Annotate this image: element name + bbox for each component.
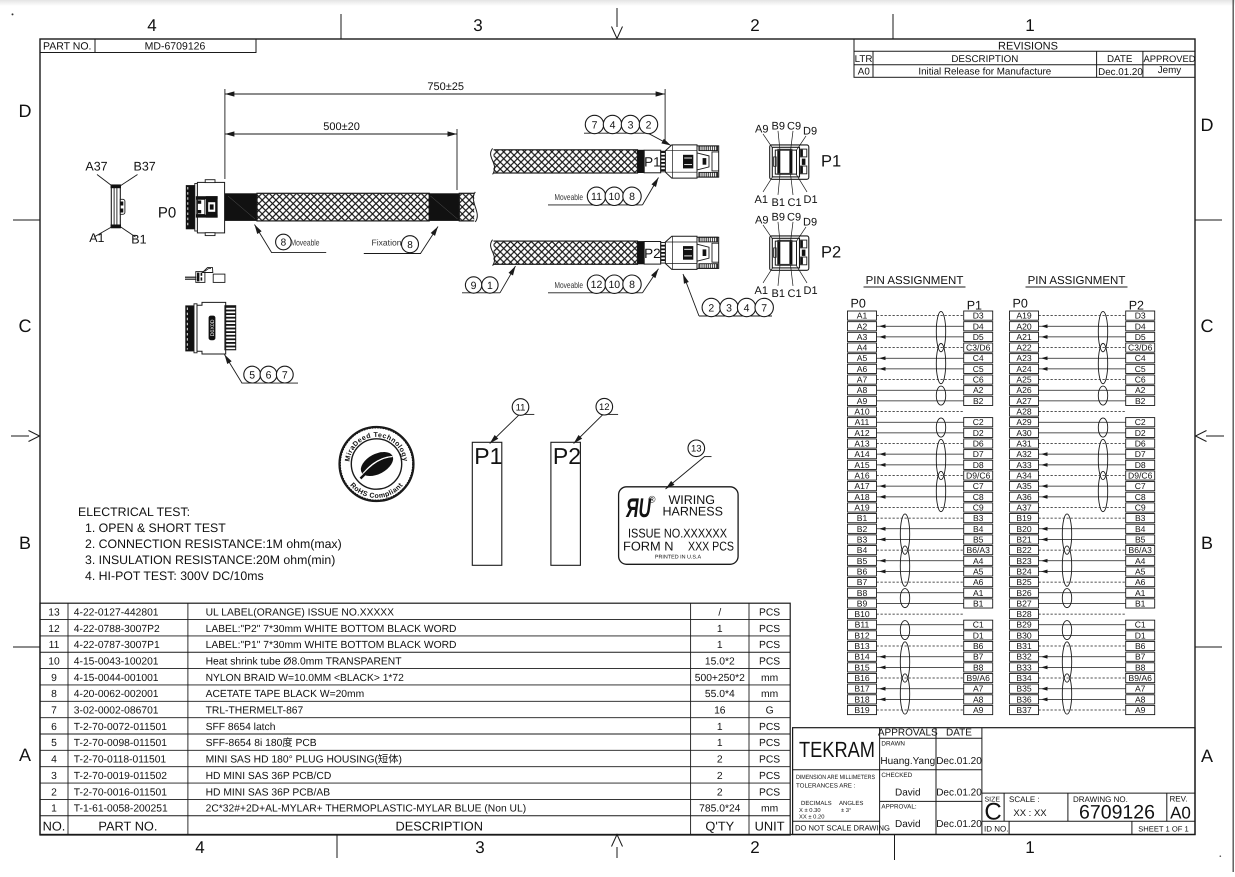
svg-text:C3/D6: C3/D6: [966, 343, 991, 353]
svg-text:2: 2: [750, 838, 759, 857]
svg-text:D2: D2: [1135, 428, 1146, 438]
svg-text:LABEL:"P1" 7*30mm WHITE BOTTOM: LABEL:"P1" 7*30mm WHITE BOTTOM BLACK WOR…: [206, 640, 457, 651]
svg-text:6: 6: [51, 722, 57, 733]
svg-text:D3: D3: [1135, 311, 1146, 321]
svg-text:D5: D5: [1135, 332, 1146, 342]
svg-text:C5: C5: [1135, 364, 1146, 374]
svg-text:2: 2: [51, 787, 57, 798]
svg-text:B13: B13: [854, 641, 870, 651]
svg-text:2: 2: [750, 16, 759, 35]
svg-text:Moveable: Moveable: [555, 280, 584, 290]
svg-text:P0: P0: [851, 297, 866, 311]
svg-text:B6: B6: [857, 566, 868, 576]
svg-text:DESCRIPTION: DESCRIPTION: [396, 818, 483, 833]
svg-text:SFF-8654 8i 180度 PCB: SFF-8654 8i 180度 PCB: [206, 737, 317, 749]
svg-text:A2: A2: [857, 321, 868, 331]
svg-text:MD-6709126: MD-6709126: [145, 41, 206, 53]
svg-text:11: 11: [591, 191, 602, 203]
svg-text:A24: A24: [1016, 364, 1032, 374]
svg-text:C2: C2: [973, 417, 984, 427]
svg-text:T-2-70-0016-011501: T-2-70-0016-011501: [74, 787, 167, 798]
svg-text:B5: B5: [973, 534, 984, 544]
svg-text:7: 7: [282, 369, 288, 381]
svg-text:B9: B9: [772, 120, 785, 132]
svg-text:3-02-0002-086701: 3-02-0002-086701: [74, 706, 159, 717]
svg-text:9: 9: [51, 673, 57, 684]
svg-text:DRAWN: DRAWN: [881, 741, 905, 748]
svg-text:55.0*4: 55.0*4: [705, 689, 735, 700]
svg-text:D9: D9: [803, 216, 817, 228]
svg-text:A25: A25: [1016, 375, 1032, 385]
svg-text:4. HI-POT TEST: 300V DC/10ms: 4. HI-POT TEST: 300V DC/10ms: [85, 569, 264, 583]
svg-text:Moveable: Moveable: [291, 238, 320, 248]
svg-text:A1: A1: [973, 588, 984, 598]
svg-text:7: 7: [761, 302, 767, 314]
svg-text:Fixation: Fixation: [372, 238, 402, 248]
svg-text:15.0*2: 15.0*2: [705, 656, 735, 667]
svg-text:C1: C1: [1135, 620, 1146, 630]
svg-text:B21: B21: [1016, 534, 1032, 544]
svg-text:B19: B19: [1016, 513, 1032, 523]
svg-text:16: 16: [714, 706, 726, 717]
svg-text:T-2-70-0019-011502: T-2-70-0019-011502: [74, 771, 167, 782]
svg-text:B31: B31: [1016, 641, 1032, 651]
svg-text:B9: B9: [772, 211, 785, 223]
svg-text:C5: C5: [973, 364, 984, 374]
svg-text:B12: B12: [854, 630, 870, 640]
svg-text:TRL-THERMELT-867: TRL-THERMELT-867: [206, 706, 304, 717]
svg-text:8: 8: [629, 279, 635, 291]
svg-text:A19: A19: [1016, 311, 1032, 321]
svg-text:B26: B26: [1016, 588, 1032, 598]
svg-text:REVISIONS: REVISIONS: [998, 41, 1058, 53]
svg-text:12: 12: [48, 624, 60, 635]
svg-text:APPROVALS: APPROVALS: [878, 728, 938, 739]
svg-text:A9: A9: [857, 396, 868, 406]
svg-text:C9: C9: [1135, 502, 1146, 512]
svg-text:B3: B3: [1135, 513, 1146, 523]
svg-text:D8: D8: [1135, 460, 1146, 470]
svg-text:mm: mm: [761, 804, 778, 815]
svg-text:A9: A9: [973, 705, 984, 715]
svg-text:B32: B32: [1016, 652, 1032, 662]
svg-text:D8: D8: [973, 460, 984, 470]
svg-text:C4: C4: [1135, 353, 1146, 363]
svg-text:PART NO.: PART NO.: [43, 41, 91, 53]
svg-text:1: 1: [717, 722, 723, 733]
svg-text:Dec.01.20: Dec.01.20: [936, 756, 982, 767]
svg-text:C6: C6: [973, 375, 984, 385]
svg-text:UNIT: UNIT: [755, 818, 785, 833]
svg-text:A32: A32: [1016, 449, 1032, 459]
svg-text:/: /: [718, 607, 721, 618]
svg-text:C8: C8: [973, 492, 984, 502]
svg-text:A22: A22: [1016, 343, 1032, 353]
svg-text:XX : XX: XX : XX: [1013, 808, 1047, 819]
svg-text:®: ®: [649, 495, 656, 506]
svg-text:C4: C4: [973, 353, 984, 363]
svg-text:A0: A0: [858, 67, 871, 78]
svg-text:4: 4: [744, 302, 750, 314]
svg-text:P2: P2: [644, 246, 661, 261]
svg-text:David: David: [895, 819, 921, 830]
svg-text:A33: A33: [1016, 460, 1032, 470]
svg-text:B36: B36: [1016, 694, 1032, 704]
svg-text:B9: B9: [857, 598, 868, 608]
svg-text:B8: B8: [973, 662, 984, 672]
svg-text:A4: A4: [973, 556, 984, 566]
svg-text:12: 12: [599, 402, 610, 413]
svg-text:750±25: 750±25: [427, 81, 464, 93]
svg-text:785.0*24: 785.0*24: [699, 804, 741, 815]
svg-text:X ± 0.30: X ± 0.30: [799, 807, 821, 814]
svg-text:A16: A16: [854, 471, 870, 481]
svg-text:B8: B8: [857, 588, 868, 598]
svg-text:B6/A3: B6/A3: [1128, 545, 1152, 555]
svg-text:D9/C6: D9/C6: [966, 471, 991, 481]
svg-text:D: D: [1201, 115, 1214, 135]
svg-text:10: 10: [608, 279, 620, 291]
svg-text:A26: A26: [1016, 385, 1032, 395]
svg-text:DIMENSION ARE MILLIMETERS: DIMENSION ARE MILLIMETERS: [796, 774, 875, 781]
svg-text:D3: D3: [973, 311, 984, 321]
svg-text:A6: A6: [973, 577, 984, 587]
svg-text:B1: B1: [973, 598, 984, 608]
svg-text:B29: B29: [1016, 620, 1032, 630]
svg-text:C: C: [984, 799, 1001, 826]
svg-text:C: C: [1201, 316, 1214, 336]
svg-text:10: 10: [48, 656, 60, 667]
svg-text:B: B: [1201, 533, 1213, 553]
svg-text:ACETATE TAPE BLACK W=20mm: ACETATE TAPE BLACK W=20mm: [206, 689, 365, 700]
svg-text:A1: A1: [755, 194, 768, 206]
svg-text:DECIMALS: DECIMALS: [801, 800, 832, 807]
svg-text:1: 1: [51, 804, 57, 815]
svg-text:SHEET 1 OF 1: SHEET 1 OF 1: [1138, 825, 1189, 834]
svg-text:1: 1: [1025, 16, 1034, 35]
svg-text:A: A: [1201, 746, 1213, 766]
svg-text:D5: D5: [973, 332, 984, 342]
svg-text:500±20: 500±20: [323, 121, 360, 133]
svg-text:11: 11: [516, 402, 526, 413]
svg-text:ID NO.: ID NO.: [984, 825, 1008, 834]
svg-text:B8: B8: [1135, 662, 1146, 672]
svg-text:1: 1: [717, 624, 723, 635]
svg-text:A7: A7: [857, 375, 868, 385]
svg-text:1: 1: [1025, 838, 1034, 857]
svg-text:B6: B6: [1135, 641, 1146, 651]
svg-text:Moveable: Moveable: [555, 192, 584, 202]
svg-text:C1: C1: [973, 620, 984, 630]
svg-text:P0: P0: [158, 204, 176, 221]
svg-text:A5: A5: [973, 566, 984, 576]
svg-text:P1: P1: [821, 152, 841, 170]
svg-text:4: 4: [147, 16, 156, 35]
svg-text:D7: D7: [1135, 449, 1146, 459]
svg-text:D2: D2: [973, 428, 984, 438]
svg-text:± 3°: ± 3°: [841, 807, 851, 814]
svg-text:3: 3: [473, 16, 482, 35]
svg-text:B5: B5: [1135, 534, 1146, 544]
svg-text:Heat shrink tube Ø8.0mm TRANSP: Heat shrink tube Ø8.0mm TRANSPARENT: [206, 656, 403, 667]
svg-text:A20: A20: [1016, 321, 1032, 331]
svg-text:B11: B11: [855, 620, 870, 630]
svg-text:C9: C9: [787, 120, 801, 132]
svg-text:LABEL:"P2" 7*30mm WHITE BOTTOM: LABEL:"P2" 7*30mm WHITE BOTTOM BLACK WOR…: [206, 624, 457, 635]
svg-text:B27: B27: [1016, 598, 1032, 608]
svg-text:A28: A28: [1016, 407, 1032, 417]
svg-text:4: 4: [195, 838, 204, 857]
svg-text:B9/A6: B9/A6: [966, 673, 990, 683]
svg-text:A23: A23: [1016, 353, 1032, 363]
svg-text:B14: B14: [854, 652, 870, 662]
svg-text:D9/C6: D9/C6: [1128, 471, 1153, 481]
svg-text:A: A: [19, 745, 31, 765]
svg-text:A1: A1: [89, 231, 104, 245]
svg-text:8: 8: [51, 689, 57, 700]
svg-text:T-2-70-0098-011501: T-2-70-0098-011501: [74, 738, 167, 749]
svg-text:2: 2: [717, 755, 723, 766]
svg-text:C9: C9: [973, 502, 984, 512]
svg-text:A4: A4: [857, 343, 868, 353]
svg-text:DESCRIPTION: DESCRIPTION: [951, 54, 1018, 65]
svg-text:NO.: NO.: [43, 818, 66, 833]
svg-text:8: 8: [281, 238, 287, 249]
svg-text:B30: B30: [1016, 630, 1032, 640]
svg-text:C8: C8: [1135, 492, 1146, 502]
svg-text:DO NOT SCALE DRAWING: DO NOT SCALE DRAWING: [795, 824, 890, 833]
svg-text:A37: A37: [1016, 502, 1032, 512]
svg-text:13: 13: [48, 607, 60, 618]
svg-text:B18: B18: [854, 694, 870, 704]
svg-text:TOLERANCES ARE :: TOLERANCES ARE :: [796, 783, 856, 790]
svg-text:Initial Release for Manufactur: Initial Release for Manufacture: [918, 67, 1051, 78]
svg-text:A2: A2: [1135, 385, 1146, 395]
svg-text:B24: B24: [1016, 566, 1032, 576]
svg-text:T-1-61-0058-200251: T-1-61-0058-200251: [74, 804, 168, 815]
svg-text:D: D: [19, 101, 32, 121]
svg-text:XX ± 0.20: XX ± 0.20: [799, 814, 824, 821]
svg-text:C7: C7: [1135, 481, 1146, 491]
svg-text:REV.: REV.: [1170, 795, 1188, 804]
svg-text:7: 7: [592, 119, 598, 131]
svg-text:B7: B7: [857, 577, 868, 587]
svg-text:9: 9: [471, 280, 477, 292]
svg-text:B4: B4: [1135, 524, 1146, 534]
svg-text:4: 4: [51, 755, 57, 766]
svg-text:P1: P1: [644, 155, 661, 170]
svg-text:4-22-0788-3007P2: 4-22-0788-3007P2: [74, 624, 160, 635]
svg-text:C3/D6: C3/D6: [1128, 343, 1153, 353]
svg-text:D6: D6: [973, 439, 984, 449]
svg-text:B10: B10: [854, 609, 870, 619]
svg-text:XXX PCS: XXX PCS: [688, 538, 734, 553]
svg-text:A5: A5: [1135, 566, 1146, 576]
svg-text:Jemy: Jemy: [1158, 65, 1182, 76]
svg-text:1. OPEN & SHORT TEST: 1. OPEN & SHORT TEST: [85, 521, 226, 535]
svg-text:12: 12: [591, 279, 603, 291]
svg-text:PIN ASSIGNMENT: PIN ASSIGNMENT: [866, 275, 964, 287]
svg-text:B28: B28: [1016, 609, 1032, 619]
svg-text:PART NO.: PART NO.: [98, 818, 157, 833]
svg-text:C1: C1: [788, 197, 802, 209]
svg-text:A10: A10: [854, 407, 870, 417]
svg-text:1: 1: [717, 738, 723, 749]
svg-text:A6: A6: [1135, 577, 1146, 587]
svg-text:A31: A31: [1016, 439, 1032, 449]
svg-text:B1: B1: [857, 513, 868, 523]
svg-text:A21: A21: [1016, 332, 1032, 342]
svg-text:B34: B34: [1016, 673, 1032, 683]
svg-text:B1: B1: [131, 232, 146, 246]
svg-text:13: 13: [691, 444, 702, 455]
svg-text:3: 3: [628, 119, 634, 131]
svg-text:FORM N: FORM N: [623, 538, 673, 553]
svg-text:D1: D1: [1135, 630, 1146, 640]
svg-text:A1: A1: [755, 285, 768, 297]
svg-text:10: 10: [608, 191, 620, 203]
svg-text:A30: A30: [1016, 428, 1032, 438]
svg-text:2: 2: [717, 771, 723, 782]
svg-text:B4: B4: [857, 545, 868, 555]
svg-text:4: 4: [610, 119, 616, 131]
svg-text:Dec.01.20: Dec.01.20: [936, 788, 982, 799]
svg-text:A6: A6: [857, 364, 868, 374]
svg-text:A4: A4: [1135, 556, 1146, 566]
svg-text:3: 3: [475, 838, 484, 857]
svg-text:A3: A3: [857, 332, 868, 342]
svg-text:David: David: [895, 788, 921, 799]
svg-text:UL LABEL(ORANGE) ISSUE NO.XXXX: UL LABEL(ORANGE) ISSUE NO.XXXXX: [206, 607, 395, 618]
svg-text:2: 2: [717, 787, 723, 798]
svg-text:8: 8: [407, 240, 413, 251]
svg-text:B4: B4: [973, 524, 984, 534]
svg-text:B6: B6: [973, 641, 984, 651]
svg-text:T-2-70-0118-011501: T-2-70-0118-011501: [74, 755, 167, 766]
svg-text:3: 3: [726, 302, 732, 314]
svg-text:ANGLES: ANGLES: [839, 800, 863, 807]
svg-text:C: C: [19, 316, 32, 336]
svg-text:B35: B35: [1016, 684, 1032, 694]
svg-text:A9: A9: [1135, 705, 1146, 715]
svg-text:ELECTRICAL TEST:: ELECTRICAL TEST:: [78, 505, 190, 519]
svg-text:B3: B3: [857, 534, 868, 544]
svg-text:A36: A36: [1016, 492, 1032, 502]
svg-text:6: 6: [266, 369, 272, 381]
svg-text:4-15-0043-100201: 4-15-0043-100201: [74, 656, 159, 667]
svg-text:B15: B15: [854, 662, 870, 672]
svg-text:CHECKED: CHECKED: [881, 772, 912, 779]
svg-text:PCS: PCS: [759, 656, 780, 667]
svg-text:A13: A13: [854, 439, 870, 449]
svg-text:5: 5: [249, 369, 255, 381]
svg-text:A29: A29: [1016, 417, 1032, 427]
svg-text:B17: B17: [854, 684, 870, 694]
svg-text:A18: A18: [854, 492, 870, 502]
svg-text:T-2-70-0072-011501: T-2-70-0072-011501: [74, 722, 167, 733]
svg-text:B19: B19: [854, 705, 870, 715]
svg-text:B9/A6: B9/A6: [1128, 673, 1152, 683]
svg-text:B2: B2: [1135, 396, 1146, 406]
svg-text:NYLON BRAID W=10.0MM <BLACK> 1: NYLON BRAID W=10.0MM <BLACK> 1*72: [206, 673, 405, 684]
svg-text:D6: D6: [1135, 439, 1146, 449]
svg-text:Q'TY: Q'TY: [705, 818, 734, 833]
svg-text:B1: B1: [772, 197, 785, 209]
svg-text:2C*32#+2D+AL-MYLAR+ THERMOPLAS: 2C*32#+2D+AL-MYLAR+ THERMOPLASTIC-MYLAR …: [206, 804, 527, 815]
svg-text:P2: P2: [553, 443, 581, 469]
svg-text:SCALE :: SCALE :: [1009, 795, 1040, 804]
svg-text:SFF 8654 latch: SFF 8654 latch: [206, 722, 276, 733]
svg-text:A2: A2: [973, 385, 984, 395]
svg-text:D1: D1: [804, 285, 818, 297]
svg-text:PCS: PCS: [759, 640, 780, 651]
svg-text:PCS: PCS: [759, 738, 780, 749]
svg-text:PCS: PCS: [759, 624, 780, 635]
svg-text:D1: D1: [973, 630, 984, 640]
svg-text:A5: A5: [857, 353, 868, 363]
svg-text:PCS: PCS: [759, 755, 780, 766]
svg-text:B22: B22: [1016, 545, 1032, 555]
svg-text:LTR: LTR: [855, 54, 873, 65]
svg-text:A27: A27: [1016, 396, 1032, 406]
svg-text:4-15-0044-001001: 4-15-0044-001001: [74, 673, 159, 684]
svg-text:P2: P2: [821, 243, 841, 261]
svg-text:A35: A35: [1016, 481, 1032, 491]
svg-text:Huang.Yang: Huang.Yang: [880, 756, 935, 767]
svg-text:B2: B2: [973, 396, 984, 406]
svg-text:4-22-0127-442801: 4-22-0127-442801: [74, 607, 159, 618]
svg-text:B33: B33: [1016, 662, 1032, 672]
svg-text:D4: D4: [1135, 321, 1146, 331]
svg-text:A17: A17: [854, 481, 870, 491]
svg-text:B37: B37: [1016, 705, 1032, 715]
svg-text:7: 7: [51, 706, 57, 717]
svg-text:G: G: [766, 706, 774, 717]
svg-text:B2: B2: [857, 524, 868, 534]
svg-text:2. CONNECTION RESISTANCE:1M oh: 2. CONNECTION RESISTANCE:1M ohm(max): [85, 537, 342, 551]
svg-text:D7: D7: [973, 449, 984, 459]
svg-text:D9: D9: [803, 125, 817, 137]
svg-text:A9: A9: [755, 214, 768, 226]
svg-text:B3: B3: [973, 513, 984, 523]
svg-text:5: 5: [51, 738, 57, 749]
svg-text:2: 2: [708, 302, 714, 314]
svg-text:A19: A19: [854, 502, 870, 512]
svg-text:B7: B7: [973, 652, 984, 662]
svg-text:3. INSULATION RESISTANCE:20M o: 3. INSULATION RESISTANCE:20M ohm(min): [85, 553, 335, 567]
svg-text:1: 1: [717, 640, 723, 651]
svg-text:B25: B25: [1016, 577, 1032, 587]
svg-text:TEKRAM: TEKRAM: [799, 737, 875, 762]
svg-text:4-22-0787-3007P1: 4-22-0787-3007P1: [74, 640, 160, 651]
svg-text:HD MINI SAS 36P PCB/CD: HD MINI SAS 36P PCB/CD: [206, 771, 332, 782]
svg-text:APPROVAL:: APPROVAL:: [881, 804, 916, 811]
svg-text:HD MINI SAS 36P PCB/AB: HD MINI SAS 36P PCB/AB: [206, 787, 331, 798]
svg-text:mm: mm: [761, 673, 778, 684]
svg-text:PIN ASSIGNMENT: PIN ASSIGNMENT: [1028, 275, 1126, 287]
svg-text:D4: D4: [973, 321, 984, 331]
svg-text:B5: B5: [857, 556, 868, 566]
svg-text:D1: D1: [804, 194, 818, 206]
svg-text:A9: A9: [755, 123, 768, 135]
svg-text:B23: B23: [1016, 556, 1032, 566]
svg-text:A14: A14: [854, 449, 870, 459]
svg-text:DATE: DATE: [946, 728, 972, 739]
svg-text:A8: A8: [857, 385, 868, 395]
svg-text:B20: B20: [1016, 524, 1032, 534]
svg-text:8: 8: [629, 191, 635, 203]
svg-text:C7: C7: [973, 481, 984, 491]
